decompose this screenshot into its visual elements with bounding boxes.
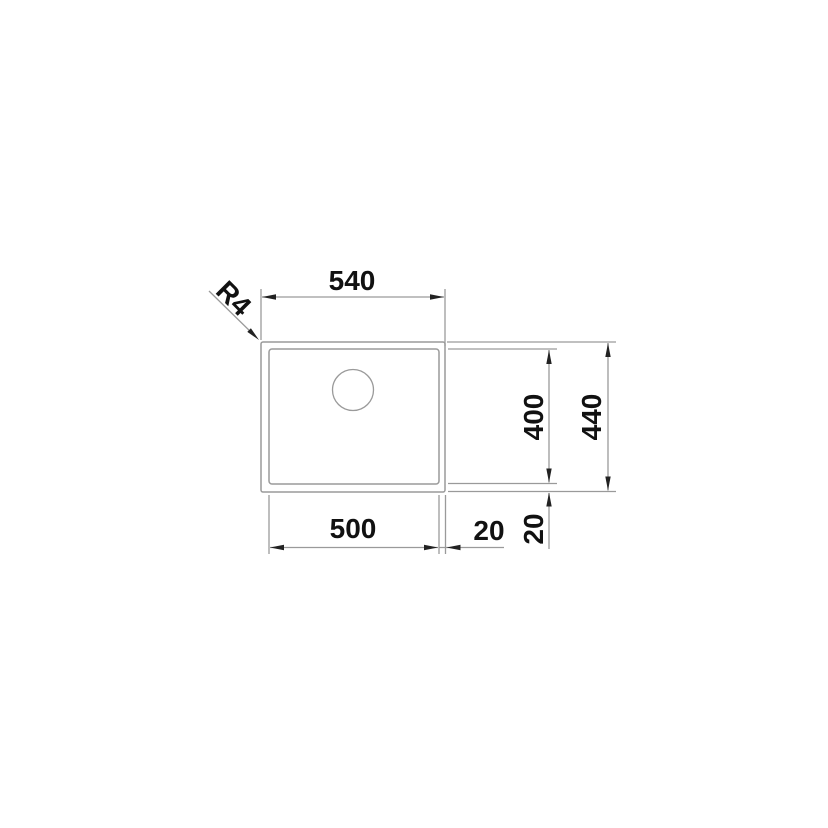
sink-technical-drawing: 540 R4 400 440 500 20 xyxy=(0,0,828,828)
dim-400-label: 400 xyxy=(518,394,549,441)
dim-540-label: 540 xyxy=(329,265,376,296)
arrowhead-540-right xyxy=(430,294,444,299)
dim-r4: R4 xyxy=(209,275,259,340)
arrowhead-500-right xyxy=(424,545,438,550)
dim-540: 540 xyxy=(261,265,445,346)
sink-outer-rect xyxy=(261,342,445,492)
dim-20h-label: 20 xyxy=(473,515,504,546)
dim-20-right-rim: 20 xyxy=(439,495,505,554)
dim-r4-label: R4 xyxy=(210,275,258,323)
dim-500: 500 xyxy=(269,495,439,554)
dim-500-label: 500 xyxy=(330,513,377,544)
dim-400: 400 xyxy=(448,349,557,484)
dim-20v-label: 20 xyxy=(518,513,549,544)
arrowhead-440-top xyxy=(605,343,610,357)
arrowhead-500-left xyxy=(270,545,284,550)
arrowhead-400-bottom xyxy=(546,469,551,483)
drain-hole-circle xyxy=(333,370,374,411)
arrowhead-20v xyxy=(546,493,551,507)
arrowhead-400-top xyxy=(546,350,551,364)
arrowhead-540-left xyxy=(262,294,276,299)
dim-20-bottom-rim: 20 xyxy=(518,493,552,550)
arrowhead-440-bottom xyxy=(605,477,610,491)
arrowhead-20h xyxy=(447,545,461,550)
dim-440-label: 440 xyxy=(576,394,607,441)
sink-outline xyxy=(261,342,445,492)
